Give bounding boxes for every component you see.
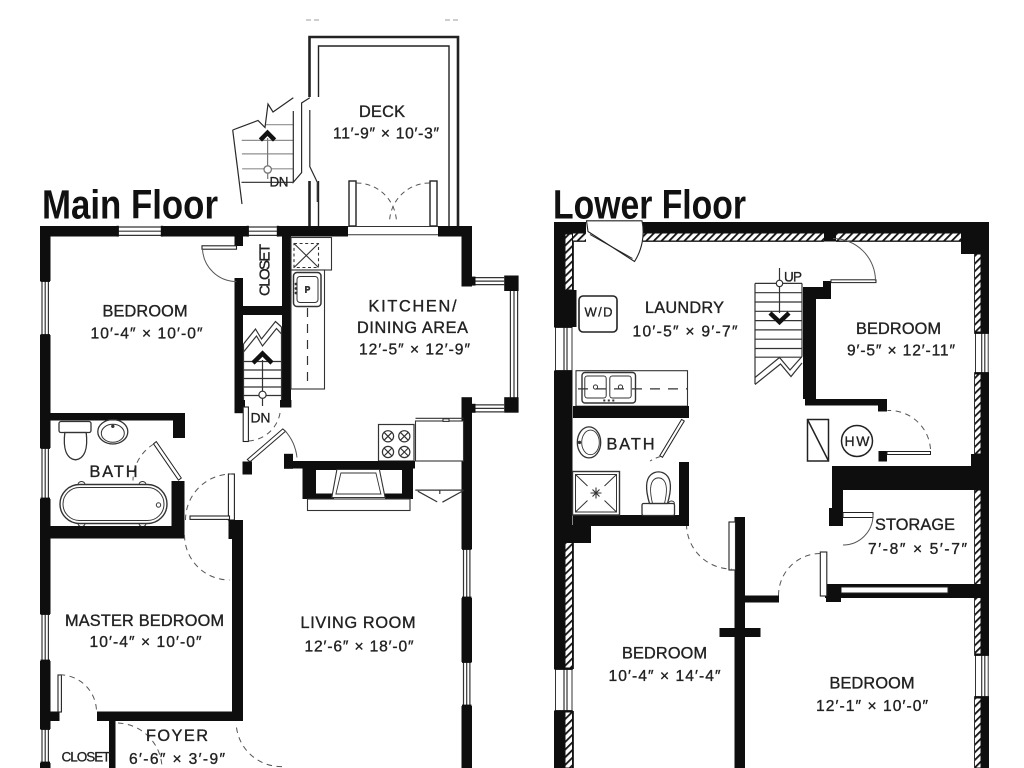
svg-text:CLOSET: CLOSET [257, 244, 274, 296]
svg-text:UP: UP [784, 270, 802, 285]
svg-text:DN: DN [251, 410, 271, 426]
svg-text:MASTER BEDROOM: MASTER BEDROOM [65, 612, 224, 630]
svg-text:DN: DN [270, 175, 289, 190]
svg-text:DINING AREA: DINING AREA [357, 319, 468, 337]
svg-text:7′-8″ × 5′-7″: 7′-8″ × 5′-7″ [868, 541, 967, 558]
svg-text:Lower Floor: Lower Floor [553, 182, 746, 228]
svg-text:STORAGE: STORAGE [875, 516, 955, 534]
svg-text:LAUNDRY: LAUNDRY [645, 299, 724, 317]
svg-text:11′-9″ × 10′-3″: 11′-9″ × 10′-3″ [333, 126, 439, 143]
svg-text:9′-5″ × 12′-11″: 9′-5″ × 12′-11″ [847, 343, 955, 360]
svg-text:BEDROOM: BEDROOM [856, 320, 941, 338]
svg-text:10′-4″ × 14′-4″: 10′-4″ × 14′-4″ [609, 668, 721, 685]
svg-text:HW: HW [845, 433, 871, 449]
svg-text:10′-4″ × 10′-0″: 10′-4″ × 10′-0″ [90, 634, 202, 651]
svg-text:Main Floor: Main Floor [42, 182, 218, 228]
svg-text:BEDROOM: BEDROOM [622, 645, 707, 663]
svg-text:BEDROOM: BEDROOM [830, 675, 915, 693]
svg-text:BATH: BATH [607, 436, 655, 454]
svg-text:KITCHEN/: KITCHEN/ [369, 298, 457, 316]
svg-text:10′-4″ × 10′-0″: 10′-4″ × 10′-0″ [91, 326, 203, 343]
svg-text:DECK: DECK [359, 103, 405, 121]
svg-text:LIVING ROOM: LIVING ROOM [301, 614, 416, 632]
svg-text:CLOSET: CLOSET [62, 750, 111, 765]
svg-text:12′-5″ × 12′-9″: 12′-5″ × 12′-9″ [359, 342, 470, 359]
svg-text:BATH: BATH [90, 463, 138, 481]
svg-text:12′-1″ × 10′-0″: 12′-1″ × 10′-0″ [816, 698, 928, 715]
svg-text:6′-6″ × 3′-9″: 6′-6″ × 3′-9″ [129, 751, 225, 768]
svg-text:10′-5″ × 9′-7″: 10′-5″ × 9′-7″ [633, 324, 738, 341]
svg-text:12′-6″ × 18′-0″: 12′-6″ × 18′-0″ [305, 639, 414, 656]
svg-text:FOYER: FOYER [146, 727, 208, 745]
svg-text:BEDROOM: BEDROOM [103, 303, 188, 321]
svg-text:P: P [305, 286, 310, 295]
svg-text:W/D: W/D [585, 305, 613, 320]
